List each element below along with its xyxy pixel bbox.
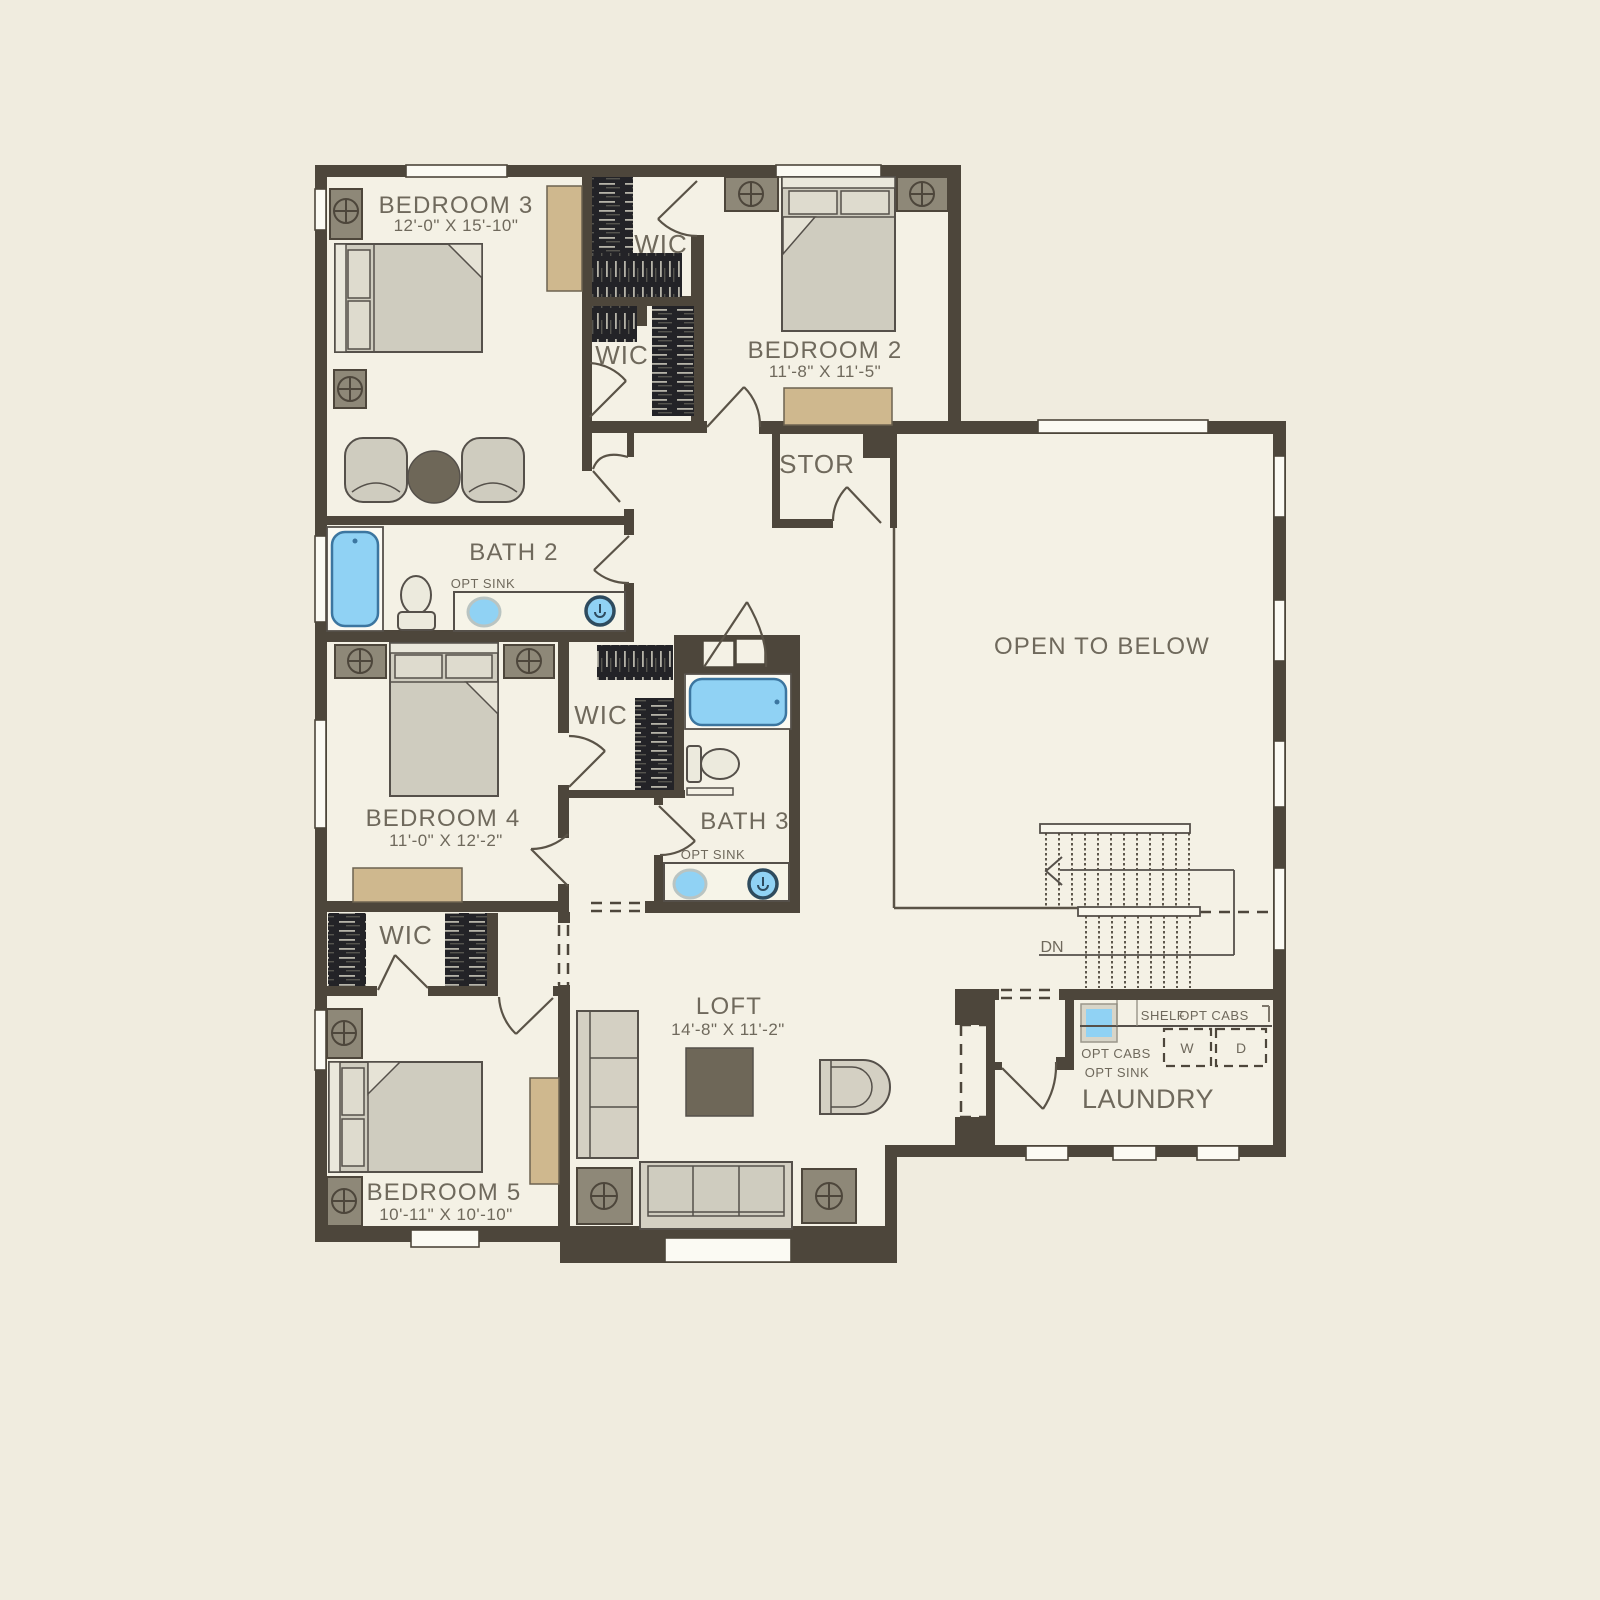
svg-text:STOR: STOR — [779, 449, 855, 479]
svg-text:11'-8" X 11'-5": 11'-8" X 11'-5" — [769, 362, 881, 381]
svg-text:DN: DN — [1040, 939, 1063, 956]
svg-text:WIC: WIC — [379, 920, 433, 950]
svg-text:14'-8" X 11'-2": 14'-8" X 11'-2" — [671, 1020, 785, 1039]
svg-text:BEDROOM 4: BEDROOM 4 — [366, 805, 521, 832]
svg-text:11'-0" X 12'-2": 11'-0" X 12'-2" — [389, 831, 503, 850]
svg-text:BATH 2: BATH 2 — [469, 539, 558, 566]
svg-text:BATH 3: BATH 3 — [700, 808, 789, 835]
svg-text:BEDROOM 3: BEDROOM 3 — [379, 192, 534, 219]
svg-text:OPT SINK: OPT SINK — [681, 847, 745, 862]
svg-text:OPT SINK: OPT SINK — [451, 576, 515, 591]
svg-text:LAUNDRY: LAUNDRY — [1082, 1084, 1214, 1114]
svg-text:10'-11" X 10'-10": 10'-11" X 10'-10" — [379, 1205, 513, 1224]
svg-text:WIC: WIC — [574, 700, 628, 730]
svg-text:LOFT: LOFT — [696, 993, 762, 1020]
svg-text:OPT SINK: OPT SINK — [1085, 1065, 1149, 1080]
svg-text:OPEN TO BELOW: OPEN TO BELOW — [994, 633, 1210, 660]
svg-text:12'-0" X 15'-10": 12'-0" X 15'-10" — [394, 216, 519, 235]
svg-text:BEDROOM 5: BEDROOM 5 — [367, 1179, 522, 1206]
svg-text:W: W — [1180, 1040, 1194, 1056]
svg-text:WIC: WIC — [595, 340, 649, 370]
svg-text:WIC: WIC — [634, 229, 688, 259]
svg-text:D: D — [1236, 1040, 1246, 1056]
svg-text:OPT CABS: OPT CABS — [1179, 1008, 1249, 1023]
svg-text:OPT CABS: OPT CABS — [1081, 1046, 1151, 1061]
svg-text:BEDROOM 2: BEDROOM 2 — [748, 337, 903, 364]
